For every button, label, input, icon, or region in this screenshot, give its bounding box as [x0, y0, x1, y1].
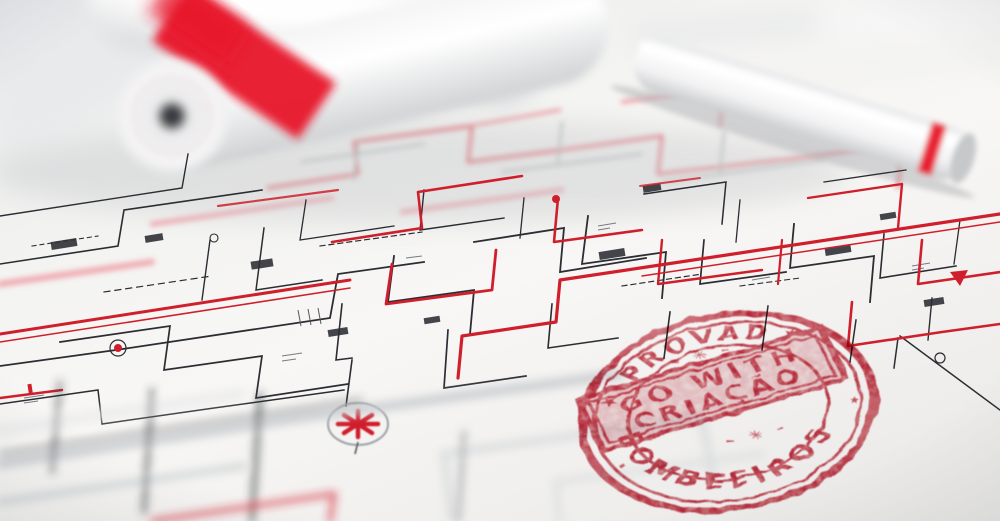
photo-vignette: [0, 0, 1000, 521]
blueprint-approval-photo: APROVADO BOMBEEIROS ★ ★ ▪ ★ – ✳ – – ✳ – …: [0, 0, 1000, 521]
